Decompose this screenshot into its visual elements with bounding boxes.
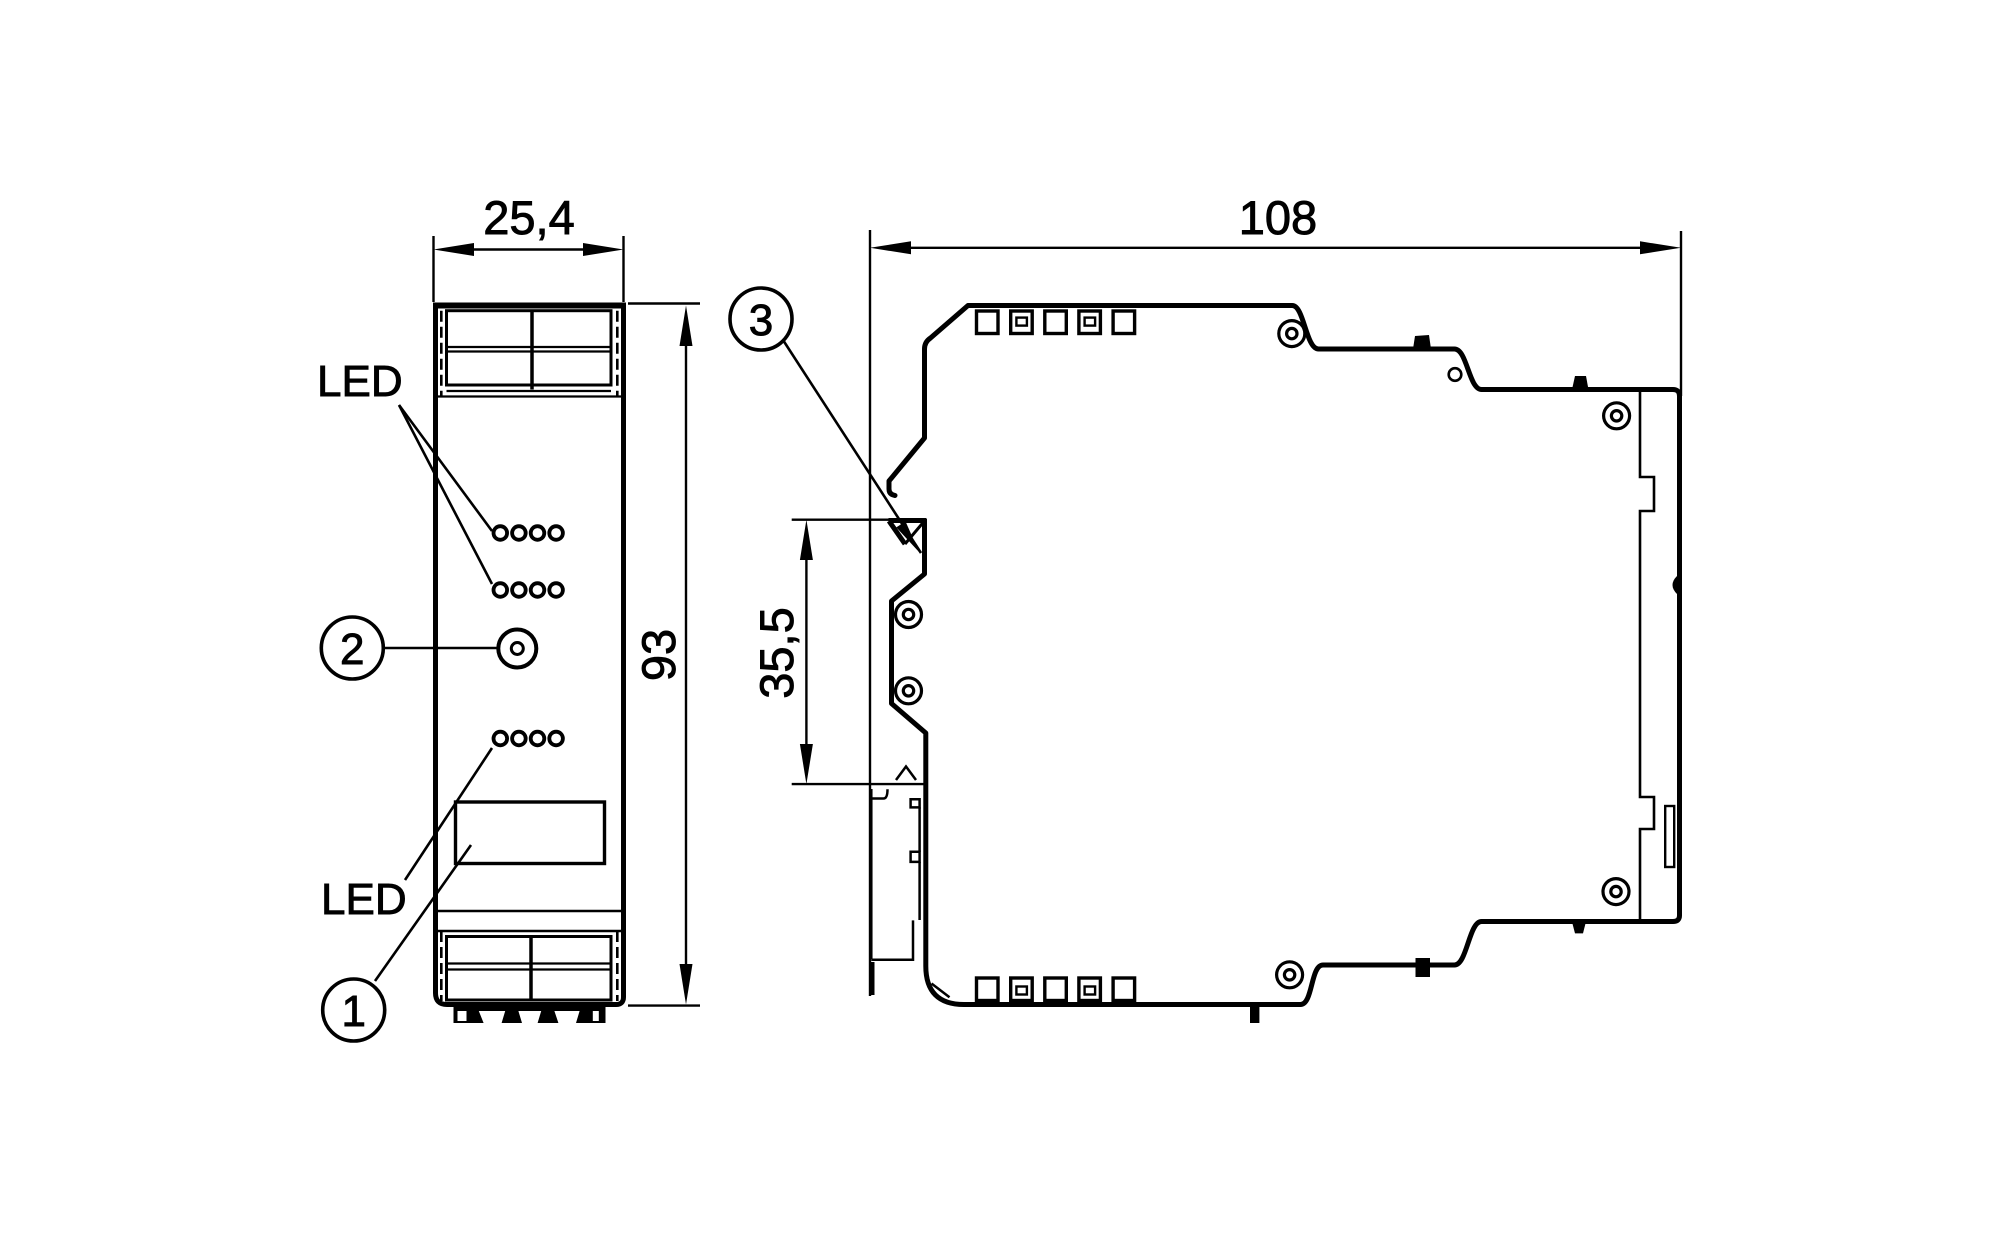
svg-text:93: 93 [632, 629, 685, 681]
svg-text:1: 1 [341, 987, 365, 1036]
svg-text:LED: LED [321, 875, 407, 924]
svg-text:2: 2 [340, 625, 364, 674]
svg-text:108: 108 [1239, 191, 1317, 244]
svg-text:3: 3 [749, 296, 773, 345]
svg-text:25,4: 25,4 [483, 191, 574, 244]
svg-text:35,5: 35,5 [750, 607, 803, 698]
svg-text:LED: LED [317, 357, 403, 406]
